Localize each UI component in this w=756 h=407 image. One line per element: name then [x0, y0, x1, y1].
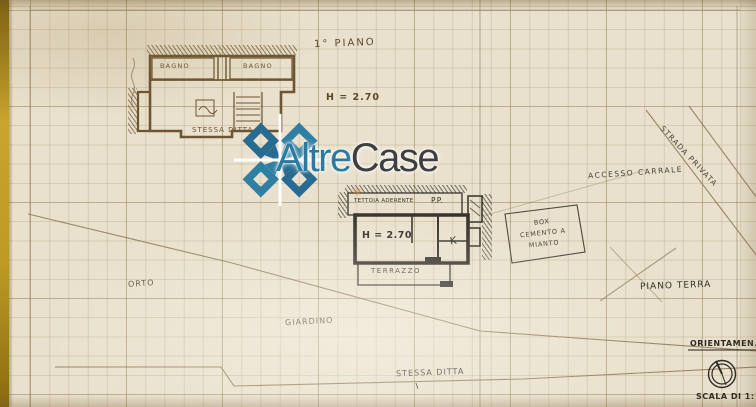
step-block — [425, 257, 441, 264]
altrecase-watermark: AltreCase — [232, 112, 462, 208]
brand-word-case: Case — [351, 136, 438, 180]
altrecase-logo-text: AltreCase — [276, 138, 438, 178]
brand-word-altre: Altre — [276, 136, 351, 180]
room-label-bagno-left: BAGNO — [160, 62, 190, 70]
photo-left-edge — [0, 0, 9, 407]
upper-plan-height-note: H = 2.70 — [326, 92, 380, 103]
room-label-bagno-right: BAGNO — [243, 62, 273, 70]
ground-plan-height-note: H = 2.70 — [362, 230, 412, 241]
terrace-label: TERRAZZO — [371, 267, 421, 275]
wc-fixture — [196, 100, 217, 116]
hatch-ground-plan-right — [482, 194, 492, 260]
upper-plan-title: 1° PIANO — [314, 37, 376, 50]
orto-label: ORTO — [128, 278, 155, 289]
tick-mark — [416, 383, 418, 389]
compass-icon — [709, 361, 736, 388]
hatch-upper-plan-top — [147, 45, 297, 55]
scale-label: SCALA DI 1: — [696, 392, 755, 401]
scanned-floor-plan-photo: 1° PIANO BAGNO BAGNO H = 2.70 STESSA DIT… — [0, 0, 756, 407]
kitchen-label: K — [449, 236, 457, 248]
step-block — [440, 281, 453, 287]
hatch-upper-plan-left — [128, 88, 137, 134]
orientation-label: ORIENTAMEN. — [690, 339, 756, 348]
